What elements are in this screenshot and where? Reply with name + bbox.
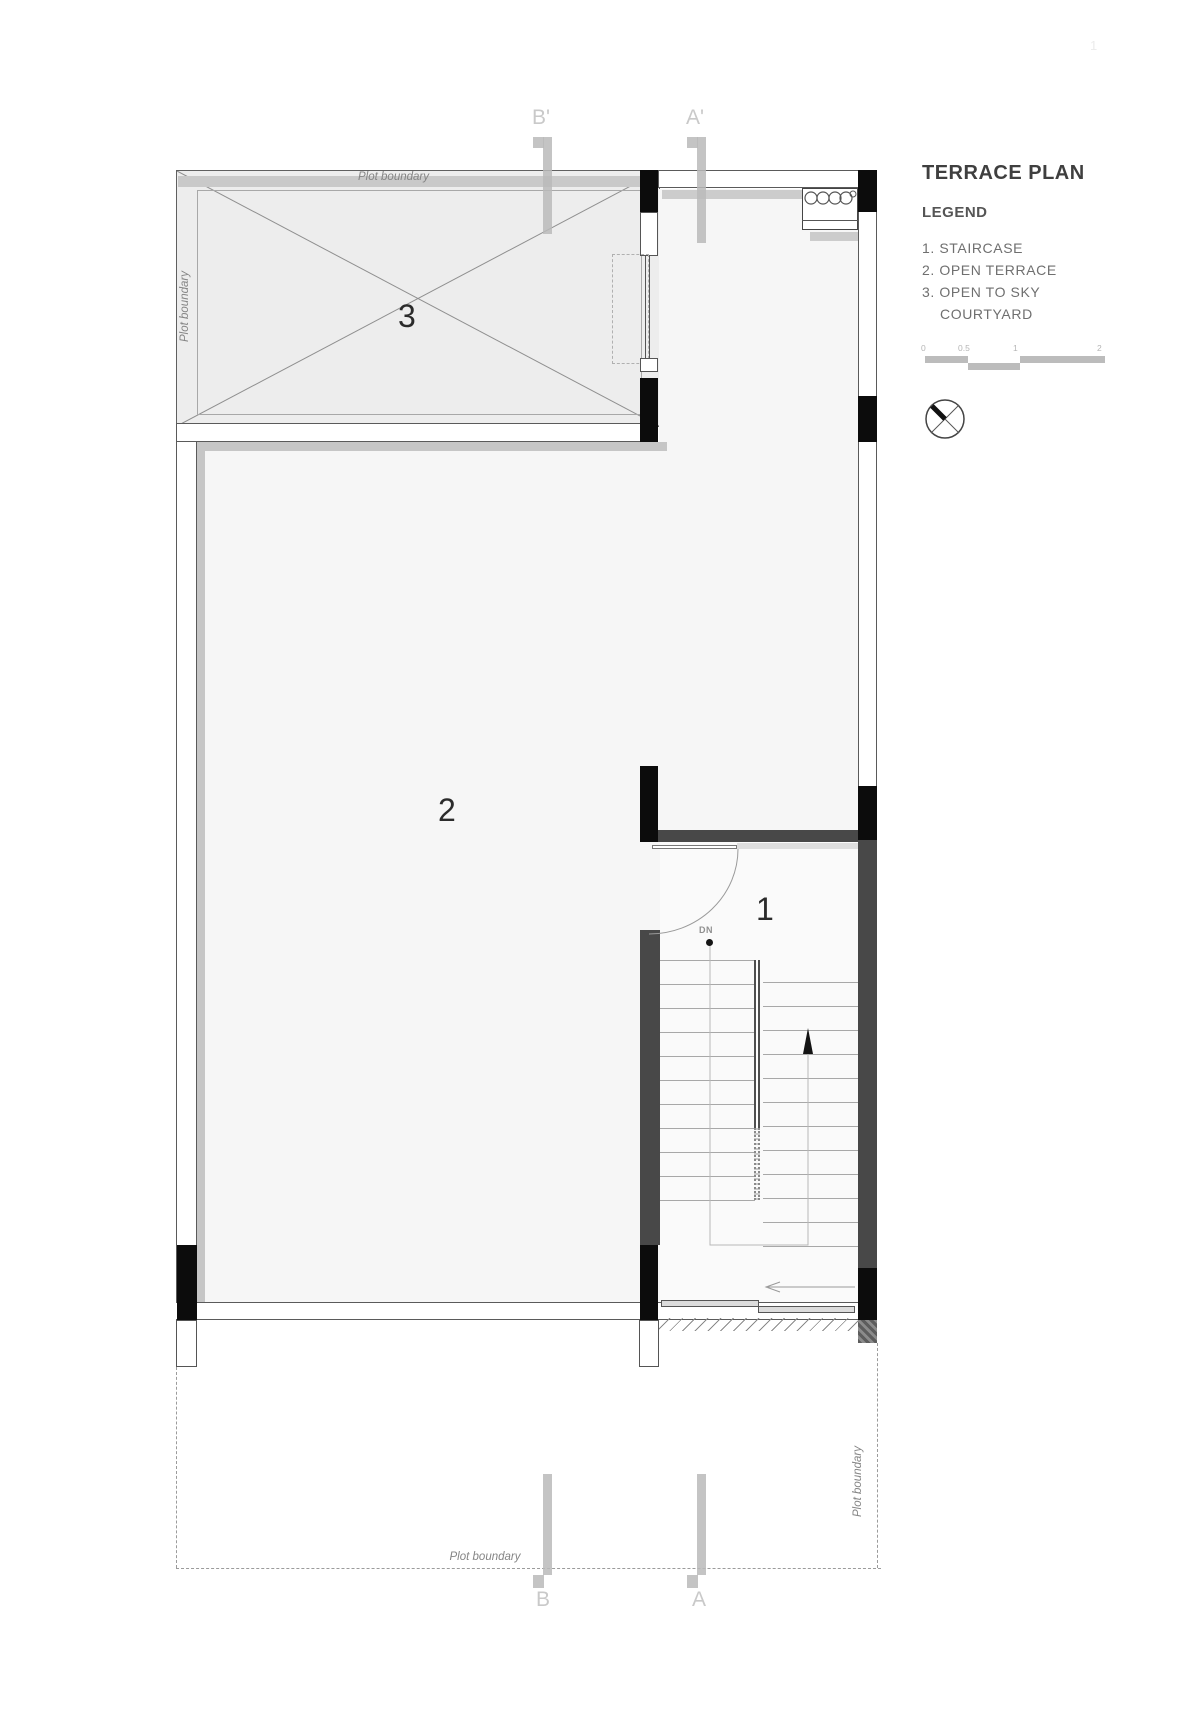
- scale-bar-segment: [925, 356, 968, 363]
- scale-tick-05: 0.5: [958, 343, 970, 353]
- sliding-door-panel-right: [758, 1306, 855, 1313]
- down-start-dot: [706, 939, 713, 946]
- parapet-shadow-left: [197, 451, 205, 1302]
- parapet-shadow-top: [197, 442, 667, 451]
- section-marker-a-bottom-foot: [687, 1575, 698, 1588]
- section-marker-b-bottom-foot: [533, 1575, 544, 1588]
- legend-item-open-terrace: 2. OPEN TERRACE: [922, 259, 1122, 281]
- legend-heading: LEGEND: [922, 204, 988, 221]
- wall-courtyard-south: [176, 423, 658, 442]
- stair-wall-east: [858, 840, 877, 1268]
- column: [858, 1268, 877, 1320]
- plot-boundary-label-bottom: Plot boundary: [420, 1551, 550, 1563]
- plot-boundary-dash-right: [877, 1343, 878, 1568]
- north-compass-icon: [922, 397, 968, 443]
- column: [177, 1245, 197, 1320]
- legend-item-courtyard: COURTYARD: [922, 303, 1122, 325]
- scale-bar-segment: [1020, 356, 1105, 363]
- scale-tick-1: 1: [1013, 343, 1018, 353]
- legend-item-open-to-sky: 3. OPEN TO SKY: [922, 281, 1122, 303]
- pipe-circles-icon: [803, 189, 857, 209]
- section-marker-a-top: [697, 137, 706, 243]
- page-number: 1: [1090, 38, 1097, 53]
- scale-tick-2: 2: [1097, 343, 1102, 353]
- room-number-courtyard: 3: [398, 298, 416, 335]
- section-marker-a-bottom: [697, 1474, 706, 1575]
- wall-west: [176, 442, 197, 1320]
- window-dashed-opening: [612, 254, 649, 364]
- hatch-threshold: [658, 1318, 858, 1331]
- terrace-plan-sheet: Plot boundary Plot boundary: [0, 0, 1200, 1724]
- courtyard-inner-border: [197, 190, 642, 415]
- column: [858, 396, 877, 442]
- plot-boundary-label-left: Plot boundary: [179, 252, 194, 362]
- section-marker-b-top: [543, 137, 552, 234]
- column: [858, 170, 877, 212]
- stair-wall-west: [640, 930, 660, 1245]
- room-number-terrace: 2: [438, 792, 456, 829]
- column: [640, 170, 658, 212]
- left-arrow-icon: [758, 1279, 858, 1295]
- stair-direction-path: [703, 936, 815, 1250]
- scale-tick-0: 0: [921, 343, 926, 353]
- door-swing-arc-icon: [648, 848, 740, 936]
- section-label-b-bottom: B: [536, 1588, 550, 1612]
- stair-wall-shadow: [737, 843, 858, 849]
- legend-item-staircase: 1. STAIRCASE: [922, 237, 1122, 259]
- stair-up-arrow-icon: [803, 1028, 813, 1054]
- column-outline: [176, 1320, 197, 1367]
- stair-wall-north: [658, 830, 858, 842]
- column-outline: [639, 1320, 659, 1367]
- section-marker-b-bottom: [543, 1474, 552, 1575]
- column: [640, 1245, 658, 1320]
- column: [640, 766, 658, 842]
- sliding-door-panel-left: [661, 1300, 759, 1307]
- down-label: DN: [699, 925, 713, 935]
- window-frame-top: [640, 212, 658, 256]
- section-label-b-top: B': [532, 106, 550, 130]
- column-hatched: [858, 1320, 877, 1343]
- wall-north: [658, 170, 877, 188]
- service-shaft-ledge: [802, 220, 858, 221]
- window-frame-bottom: [640, 358, 658, 372]
- column: [640, 378, 658, 442]
- window-glass-line: [645, 256, 650, 362]
- column: [858, 786, 877, 840]
- service-shaft-shadow: [810, 232, 858, 241]
- scale-bar-segment: [968, 363, 1020, 370]
- room-number-staircase: 1: [756, 891, 774, 928]
- page-title: TERRACE PLAN: [922, 162, 1085, 185]
- plot-boundary-dash-bottom: [176, 1568, 881, 1569]
- legend-list: 1. STAIRCASE 2. OPEN TERRACE 3. OPEN TO …: [922, 237, 1122, 325]
- top-wall-shadow: [662, 190, 802, 199]
- plot-boundary-label-top: Plot boundary: [326, 171, 461, 183]
- plot-boundary-dash-left: [176, 1367, 177, 1568]
- section-label-a-top: A': [686, 106, 704, 130]
- service-shaft-box: [802, 188, 858, 230]
- section-label-a-bottom: A: [692, 1588, 706, 1612]
- plot-boundary-label-right: Plot boundary: [852, 1432, 867, 1532]
